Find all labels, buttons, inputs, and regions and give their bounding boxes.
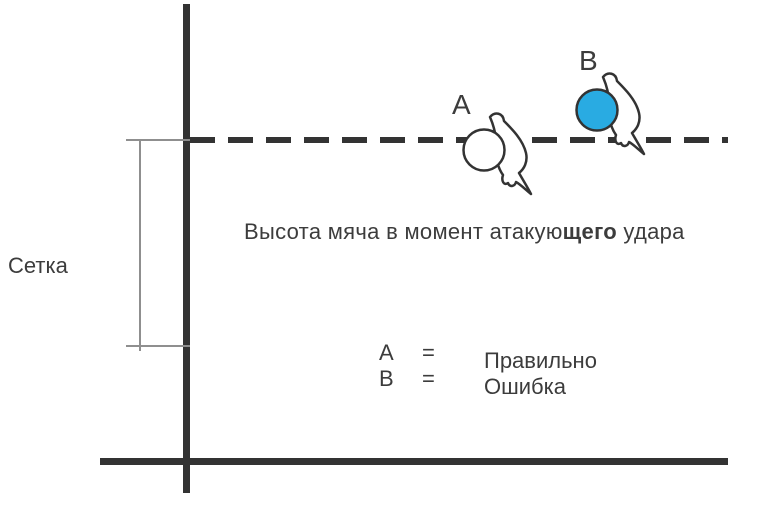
net-label: Сетка: [8, 254, 68, 278]
caption-part1: Высота мяча в момент атакую: [244, 219, 563, 244]
net-height-bracket-top-tick: [126, 139, 190, 141]
legend-value-a: Правильно: [484, 350, 597, 372]
ball-a-circle: [464, 130, 505, 171]
legend-equals-a: =: [422, 342, 435, 364]
legend-key-a: A: [379, 342, 394, 364]
caption-bold-part: щего: [563, 219, 617, 244]
net-height-bracket-bottom-tick: [126, 345, 190, 347]
ball-b-circle: [577, 90, 618, 131]
caption-text: Высота мяча в момент атакующего удара: [244, 220, 685, 244]
floor-line: [100, 458, 728, 465]
ball-a-graphic: [440, 95, 550, 205]
legend-key-b: B: [379, 368, 394, 390]
net-height-bracket-line: [139, 139, 141, 351]
net-pole-line: [183, 4, 190, 493]
legend-value-b: Ошибка: [484, 376, 566, 398]
ball-b-graphic: [553, 55, 663, 165]
caption-part2: удара: [617, 219, 685, 244]
volleyball-attack-height-diagram: Сетка Высота мяча в момент атакующего уд…: [0, 0, 768, 505]
legend-equals-b: =: [422, 368, 435, 390]
